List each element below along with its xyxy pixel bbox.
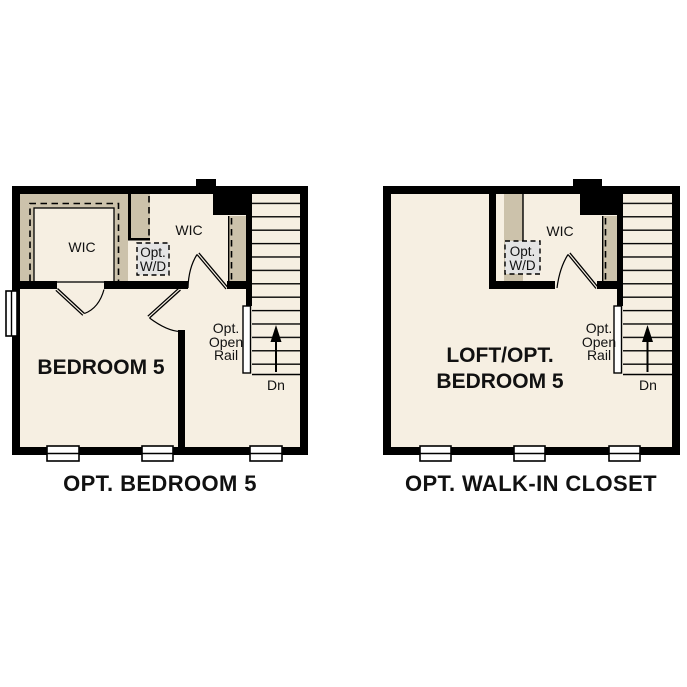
wic-label: WIC [68,239,95,255]
window [6,291,17,336]
wall-tab [196,179,216,187]
outer-wall-top [383,186,680,194]
wall-segment [597,281,620,289]
outer-wall-right [672,186,680,455]
opt-wd-label: W/D [140,259,166,274]
wall-segment [128,238,150,241]
plan-caption-right: OPT. WALK-IN CLOSET [405,471,657,496]
open-rail-label: Rail [587,347,611,363]
window [420,446,451,461]
wall-segment [227,281,248,289]
opt-wd-label: Opt. [140,245,166,260]
outer-wall-top [12,186,308,194]
bedroom-wall [178,330,185,447]
window [609,446,640,461]
wall-segment [128,194,131,240]
stair-wall [246,194,252,306]
wall-segment [104,281,188,289]
room-label-loft: BEDROOM 5 [436,370,564,393]
window [142,446,173,461]
opt-wd-label: Opt. [510,244,536,259]
open-rail [243,306,251,373]
plan-caption-left: OPT. BEDROOM 5 [63,471,257,496]
wic-label: WIC [546,223,573,239]
wall-segment [489,281,555,289]
room-label-bedroom-5: BEDROOM 5 [37,356,165,379]
stairs-down-label: Dn [267,377,285,393]
stair-wall [617,194,623,306]
outer-wall-left [383,186,391,455]
floorplan-opt-bedroom-5: WIC WIC Opt. W/D Opt. Open Rail Dn BEDRO… [6,179,308,496]
stairs-down-label: Dn [639,377,657,393]
closet-wall [489,194,496,289]
window [514,446,545,461]
open-rail-label: Rail [214,347,238,363]
floorplan-drawing: WIC WIC Opt. W/D Opt. Open Rail Dn BEDRO… [0,0,687,687]
wall-block [213,194,248,215]
shelf-strip [228,216,247,281]
window [47,446,79,461]
outer-wall-right [300,186,308,455]
window [250,446,282,461]
wall-tab [573,179,602,187]
floorplan-page: WIC WIC Opt. W/D Opt. Open Rail Dn BEDRO… [0,0,687,687]
opt-wd-label: W/D [509,258,535,273]
wic-label: WIC [175,222,202,238]
room-label-loft: LOFT/OPT. [446,344,553,367]
wall-block [580,194,620,215]
shelf-strip [131,194,150,238]
floorplan-opt-walk-in-closet: WIC Opt. W/D Opt. Open Rail Dn LOFT/OPT.… [383,179,680,496]
